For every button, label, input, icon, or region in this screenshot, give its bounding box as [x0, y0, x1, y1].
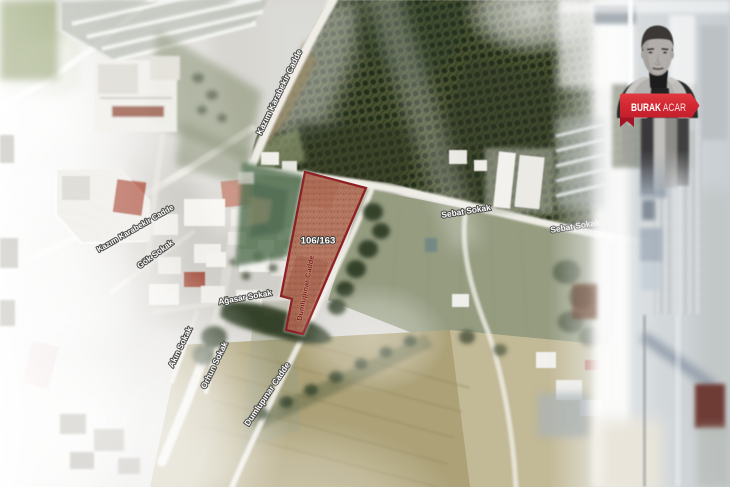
svg-text:106/163: 106/163	[301, 236, 336, 247]
svg-text:BURAK ACAR: BURAK ACAR	[631, 102, 686, 114]
